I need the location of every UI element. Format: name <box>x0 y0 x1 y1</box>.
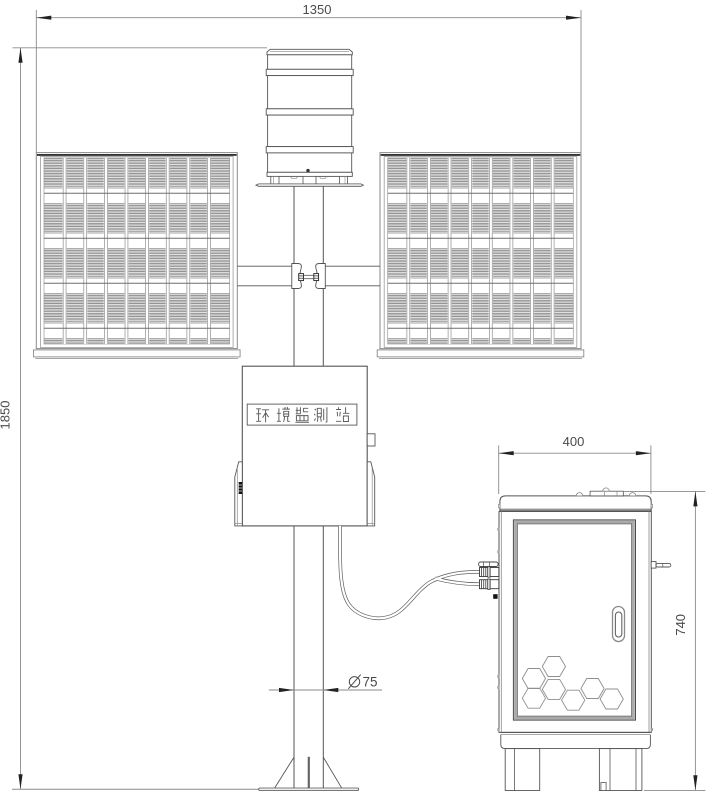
svg-text:740: 740 <box>673 614 688 636</box>
svg-text:400: 400 <box>563 434 585 449</box>
svg-text:75: 75 <box>362 674 377 689</box>
svg-text:1850: 1850 <box>0 401 13 430</box>
svg-text:1350: 1350 <box>303 2 332 17</box>
